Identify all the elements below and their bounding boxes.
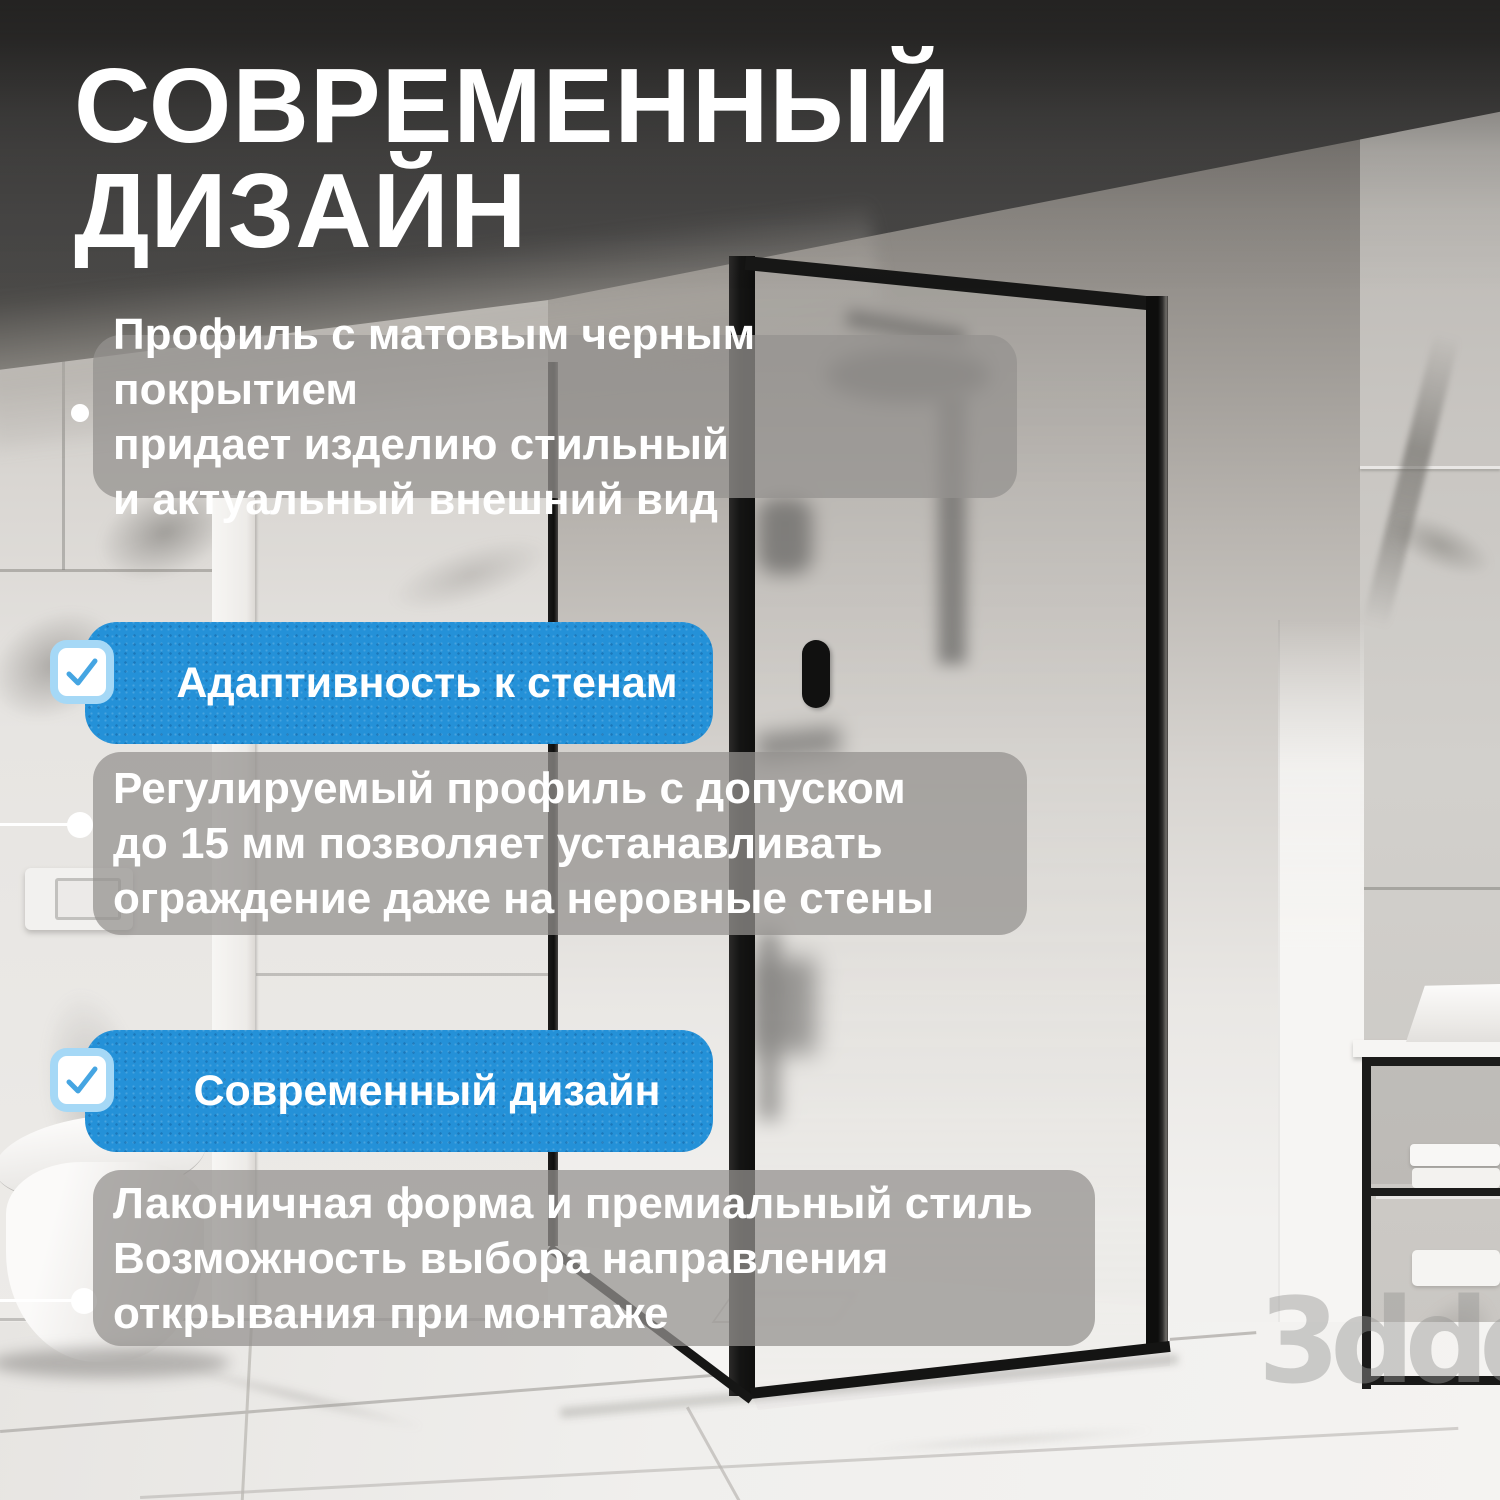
vanity-niche-shadow <box>1371 1066 1500 1184</box>
shelf-towel <box>1412 1168 1500 1188</box>
feature-text-line: ограждение даже на неровные стены <box>113 871 999 926</box>
bullet-dot-icon <box>71 404 89 422</box>
feature-panel-2: Регулируемый профиль с допуском до 15 мм… <box>93 752 1027 935</box>
toilet-floor-shadow <box>0 1348 230 1378</box>
feature-text-line: Возможность выбора направления <box>113 1231 1067 1286</box>
column-joint <box>1360 887 1500 890</box>
feature-text-line: Лаконичная форма и премиальный стиль <box>113 1176 1067 1231</box>
badge-label: Современный дизайн <box>194 1067 661 1116</box>
badge-adaptability: Адаптивность к стенам <box>85 622 713 744</box>
feature-text-line: и актуальный внешний вид <box>113 472 989 527</box>
title-line-2: ДИЗАЙН <box>74 159 951 264</box>
checkbox-check-icon <box>60 650 104 694</box>
badge-modern-design: Современный дизайн <box>85 1030 713 1152</box>
feature-text-line: придает изделию стильный <box>113 417 989 472</box>
feature-text-line: Профиль с матовым черным покрытием <box>113 307 989 417</box>
infographic-slide: 3ddd СОВРЕМЕННЫЙ ДИЗАЙН Профиль с матовы… <box>0 0 1500 1500</box>
feature-text-line: открывания при монтаже <box>113 1286 1067 1341</box>
badge-label: Адаптивность к стенам <box>176 659 677 708</box>
checkbox-check-icon <box>60 1058 104 1102</box>
tile-grout-horizontal <box>256 973 548 976</box>
door-handle <box>802 640 830 708</box>
connector-line <box>0 1299 72 1302</box>
watermark: 3ddd <box>1258 1272 1500 1410</box>
shelf-towel <box>1410 1144 1500 1166</box>
shelf-glass-highlight <box>1376 1196 1500 1199</box>
feature-panel-1: Профиль с матовым черным покрытием прида… <box>93 335 1017 498</box>
connector-line <box>0 823 70 826</box>
page-title: СОВРЕМЕННЫЙ ДИЗАЙН <box>74 54 951 264</box>
vanity-countertop <box>1353 1040 1500 1057</box>
shelf-frame-middle <box>1367 1188 1500 1196</box>
checkbox-icon <box>50 1048 114 1112</box>
connector-dot-icon <box>67 812 93 838</box>
checkbox-icon <box>50 640 114 704</box>
shelf-frame-top <box>1362 1057 1500 1066</box>
feature-text-line: Регулируемый профиль с допуском <box>113 761 999 816</box>
title-line-1: СОВРЕМЕННЫЙ <box>74 54 951 159</box>
feature-text-line: до 15 мм позволяет устанавливать <box>113 816 999 871</box>
feature-panel-3: Лаконичная форма и премиальный стиль Воз… <box>93 1170 1095 1346</box>
